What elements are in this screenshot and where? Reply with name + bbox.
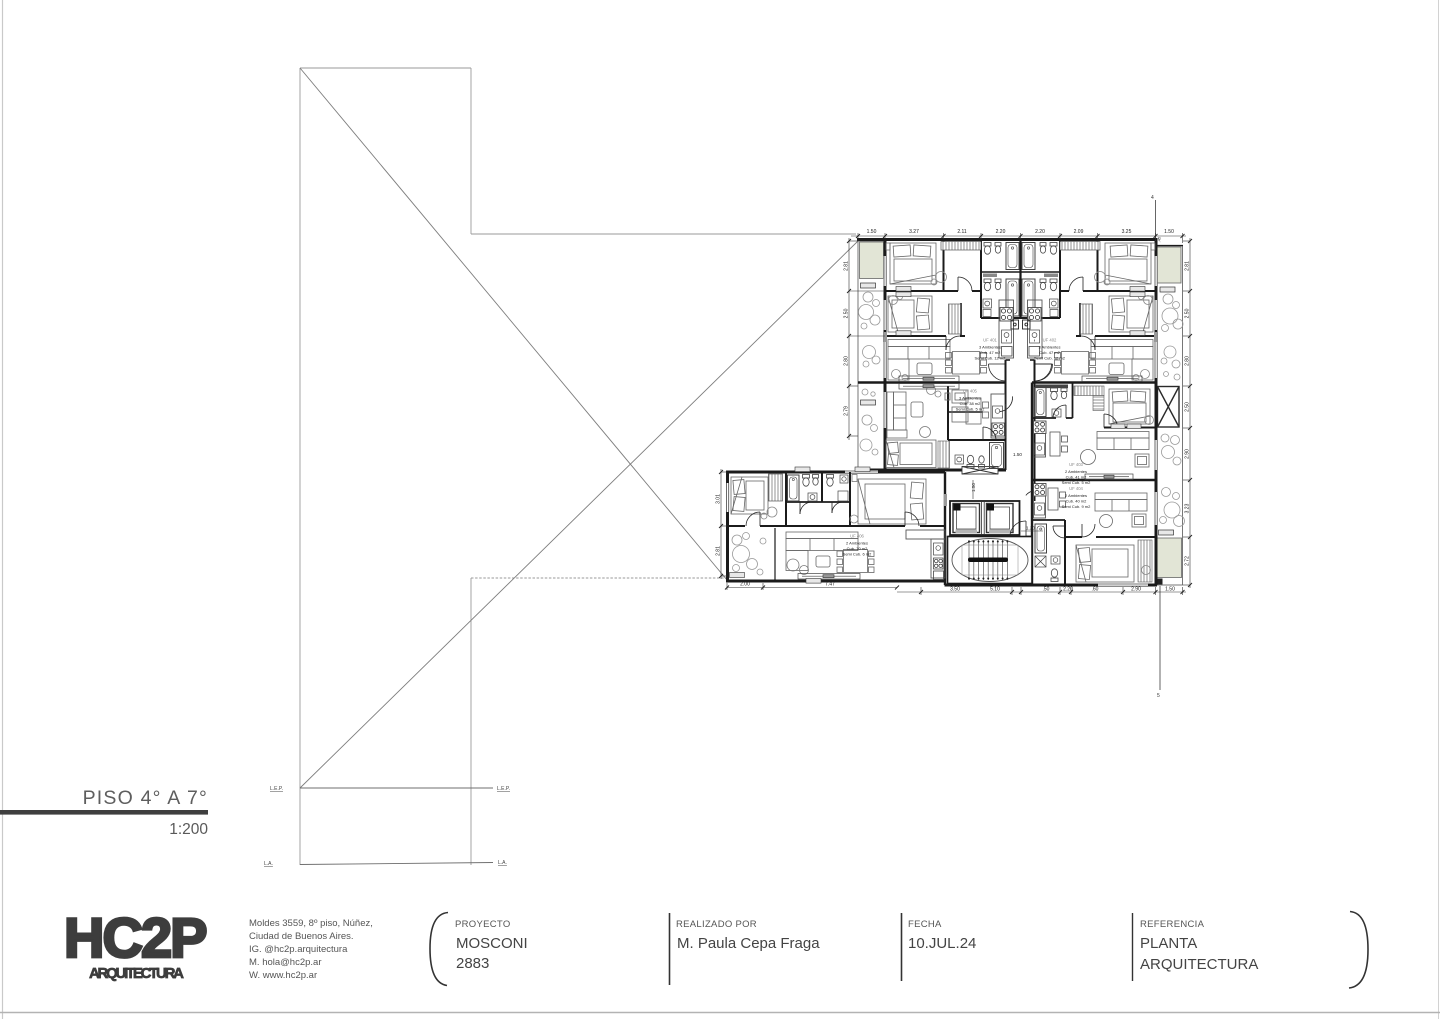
svg-text:2 Ambientes: 2 Ambientes	[1065, 469, 1087, 474]
svg-text:2.80: 2.80	[1185, 356, 1191, 366]
svg-text:5: 5	[1157, 693, 1160, 699]
svg-text:.45: .45	[1157, 236, 1162, 242]
svg-text:1.50: 1.50	[971, 483, 976, 492]
svg-text:.60: .60	[1092, 587, 1099, 593]
svg-text:UF 403: UF 403	[1069, 462, 1083, 467]
svg-text:M. Paula Cepa Fraga: M. Paula Cepa Fraga	[677, 935, 820, 952]
svg-text:2883: 2883	[456, 955, 489, 972]
svg-text:3.25: 3.25	[1122, 229, 1132, 235]
svg-text:Cub. 70 m2: Cub. 70 m2	[847, 546, 868, 551]
svg-text:Semi Cub. 9 m2: Semi Cub. 9 m2	[1062, 504, 1091, 509]
svg-text:2.81: 2.81	[844, 261, 850, 271]
svg-text:ARQUITECTURA: ARQUITECTURA	[1140, 956, 1258, 973]
svg-text:2.80: 2.80	[844, 356, 850, 366]
svg-text:2.11: 2.11	[957, 229, 967, 235]
svg-text:REALIZADO POR: REALIZADO POR	[676, 919, 757, 930]
svg-text:MOSCONI: MOSCONI	[456, 935, 528, 952]
svg-text:FECHA: FECHA	[908, 919, 942, 930]
svg-text:Ciudad de Buenos Aires.: Ciudad de Buenos Aires.	[249, 931, 354, 942]
svg-text:Cub. 40 m2: Cub. 40 m2	[1066, 499, 1087, 504]
svg-text:2.20: 2.20	[1035, 229, 1045, 235]
svg-text:1:200: 1:200	[169, 821, 208, 838]
svg-text:Semi Cub. 12 m2: Semi Cub. 12 m2	[975, 356, 1007, 361]
svg-text:4: 4	[1151, 195, 1154, 201]
svg-text:2 Ambientes: 2 Ambientes	[846, 541, 868, 546]
svg-text:UF 405: UF 405	[963, 389, 977, 394]
svg-text:10.JUL.24: 10.JUL.24	[908, 935, 976, 952]
svg-text:ARQUITECTURA: ARQUITECTURA	[89, 965, 184, 982]
svg-text:2.20: 2.20	[996, 229, 1006, 235]
svg-text:2.79: 2.79	[844, 406, 850, 416]
svg-text:W. www.hc2p.ar: W. www.hc2p.ar	[249, 970, 317, 981]
svg-text:Semi Cub. 6 m2: Semi Cub. 6 m2	[843, 552, 872, 557]
svg-text:3.27: 3.27	[909, 229, 919, 235]
svg-text:1.50: 1.50	[1165, 587, 1175, 593]
svg-text:L.A.: L.A.	[498, 860, 507, 866]
svg-text:Cub. 47 m2: Cub. 47 m2	[1039, 350, 1060, 355]
svg-text:Semi Cub. 5 m2: Semi Cub. 5 m2	[1062, 480, 1091, 485]
svg-text:1.50: 1.50	[1164, 229, 1174, 235]
svg-text:3 Ambientes: 3 Ambientes	[979, 345, 1001, 350]
svg-text:2.20: 2.20	[1063, 587, 1073, 593]
svg-text:3 Ambientes: 3 Ambientes	[1038, 345, 1060, 350]
svg-text:1.50: 1.50	[1013, 452, 1022, 457]
svg-text:UF 404: UF 404	[1069, 486, 1083, 491]
svg-text:Moldes 3559, 8º piso, Núñez,: Moldes 3559, 8º piso, Núñez,	[249, 918, 373, 929]
svg-text:UF 401: UF 401	[983, 338, 997, 343]
svg-text:UF 406: UF 406	[850, 534, 864, 539]
svg-text:.50: .50	[1043, 587, 1050, 593]
svg-text:5.10: 5.10	[990, 587, 1000, 593]
svg-text:2.81: 2.81	[716, 546, 722, 556]
svg-text:3 Ambientes: 3 Ambientes	[959, 396, 981, 401]
svg-text:2 Ambientes: 2 Ambientes	[1065, 493, 1087, 498]
svg-text:3.50: 3.50	[950, 587, 960, 593]
svg-text:PLANTA: PLANTA	[1140, 935, 1197, 952]
svg-text:2.50: 2.50	[1185, 308, 1191, 318]
svg-text:L.E.P.: L.E.P.	[497, 786, 510, 792]
svg-text:PROYECTO: PROYECTO	[455, 919, 511, 930]
svg-text:1.20: 1.20	[1026, 526, 1035, 531]
svg-text:Cub. 38 m2: Cub. 38 m2	[960, 401, 981, 406]
svg-text:3.23: 3.23	[1185, 503, 1191, 513]
svg-text:UF 402: UF 402	[1043, 338, 1057, 343]
svg-text:2.50: 2.50	[1185, 402, 1191, 412]
svg-text:2.81: 2.81	[1185, 261, 1191, 271]
svg-text:2.90: 2.90	[1131, 587, 1141, 593]
svg-text:2.00: 2.00	[740, 582, 750, 588]
svg-text:M. hola@hc2p.ar: M. hola@hc2p.ar	[249, 957, 321, 968]
svg-text:L.E.P.: L.E.P.	[270, 786, 283, 792]
svg-text:2.50: 2.50	[844, 308, 850, 318]
svg-text:IG. @hc2p.arquitectura: IG. @hc2p.arquitectura	[249, 944, 348, 955]
svg-text:2.09: 2.09	[1074, 229, 1084, 235]
svg-text:Semi Cub. 12 m2: Semi Cub. 12 m2	[1034, 356, 1066, 361]
svg-text:3.01: 3.01	[716, 494, 722, 504]
svg-text:L.A.: L.A.	[264, 861, 273, 867]
svg-text:REFERENCIA: REFERENCIA	[1140, 919, 1205, 930]
svg-text:1.50: 1.50	[867, 229, 877, 235]
svg-text:Cub. 41 m2: Cub. 41 m2	[1066, 475, 1087, 480]
svg-text:7.47: 7.47	[825, 582, 835, 588]
svg-text:Semi Cub. 5 m2: Semi Cub. 5 m2	[956, 407, 985, 412]
svg-text:2.90: 2.90	[1185, 449, 1191, 459]
svg-text:PISO 4° A 7°: PISO 4° A 7°	[83, 787, 208, 809]
svg-text:HC2P: HC2P	[64, 906, 206, 969]
svg-text:Cub. 47 m2: Cub. 47 m2	[980, 350, 1001, 355]
svg-text:2.72: 2.72	[1185, 556, 1191, 566]
